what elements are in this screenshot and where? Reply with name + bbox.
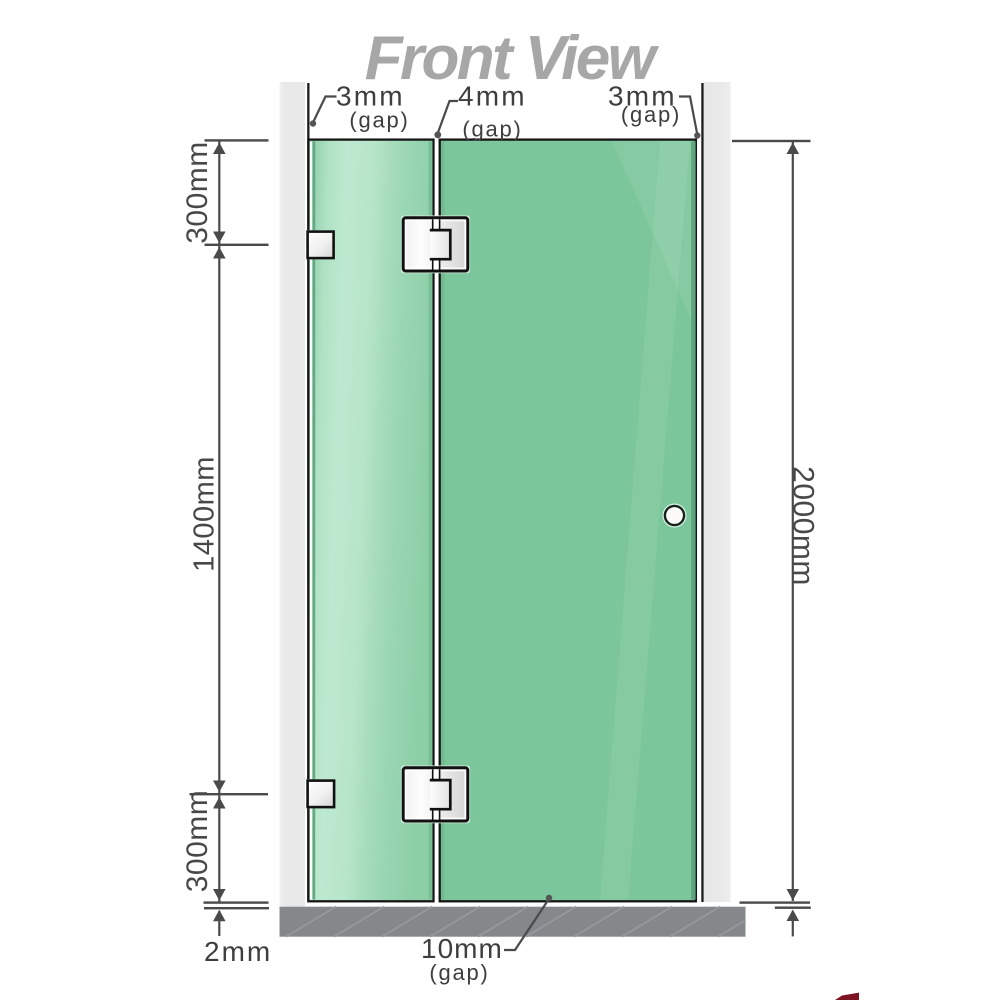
svg-text:4mm: 4mm [458,81,527,112]
svg-text:2mm: 2mm [204,936,272,967]
svg-text:1400mm: 1400mm [189,456,221,572]
svg-text:(gap): (gap) [349,108,409,133]
svg-text:(gap): (gap) [621,102,681,127]
svg-text:2000mm: 2000mm [787,466,820,586]
svg-text:300mm: 300mm [181,790,214,893]
svg-text:300mm: 300mm [181,141,214,244]
svg-text:(gap): (gap) [462,117,522,142]
svg-text:(gap): (gap) [429,960,489,985]
